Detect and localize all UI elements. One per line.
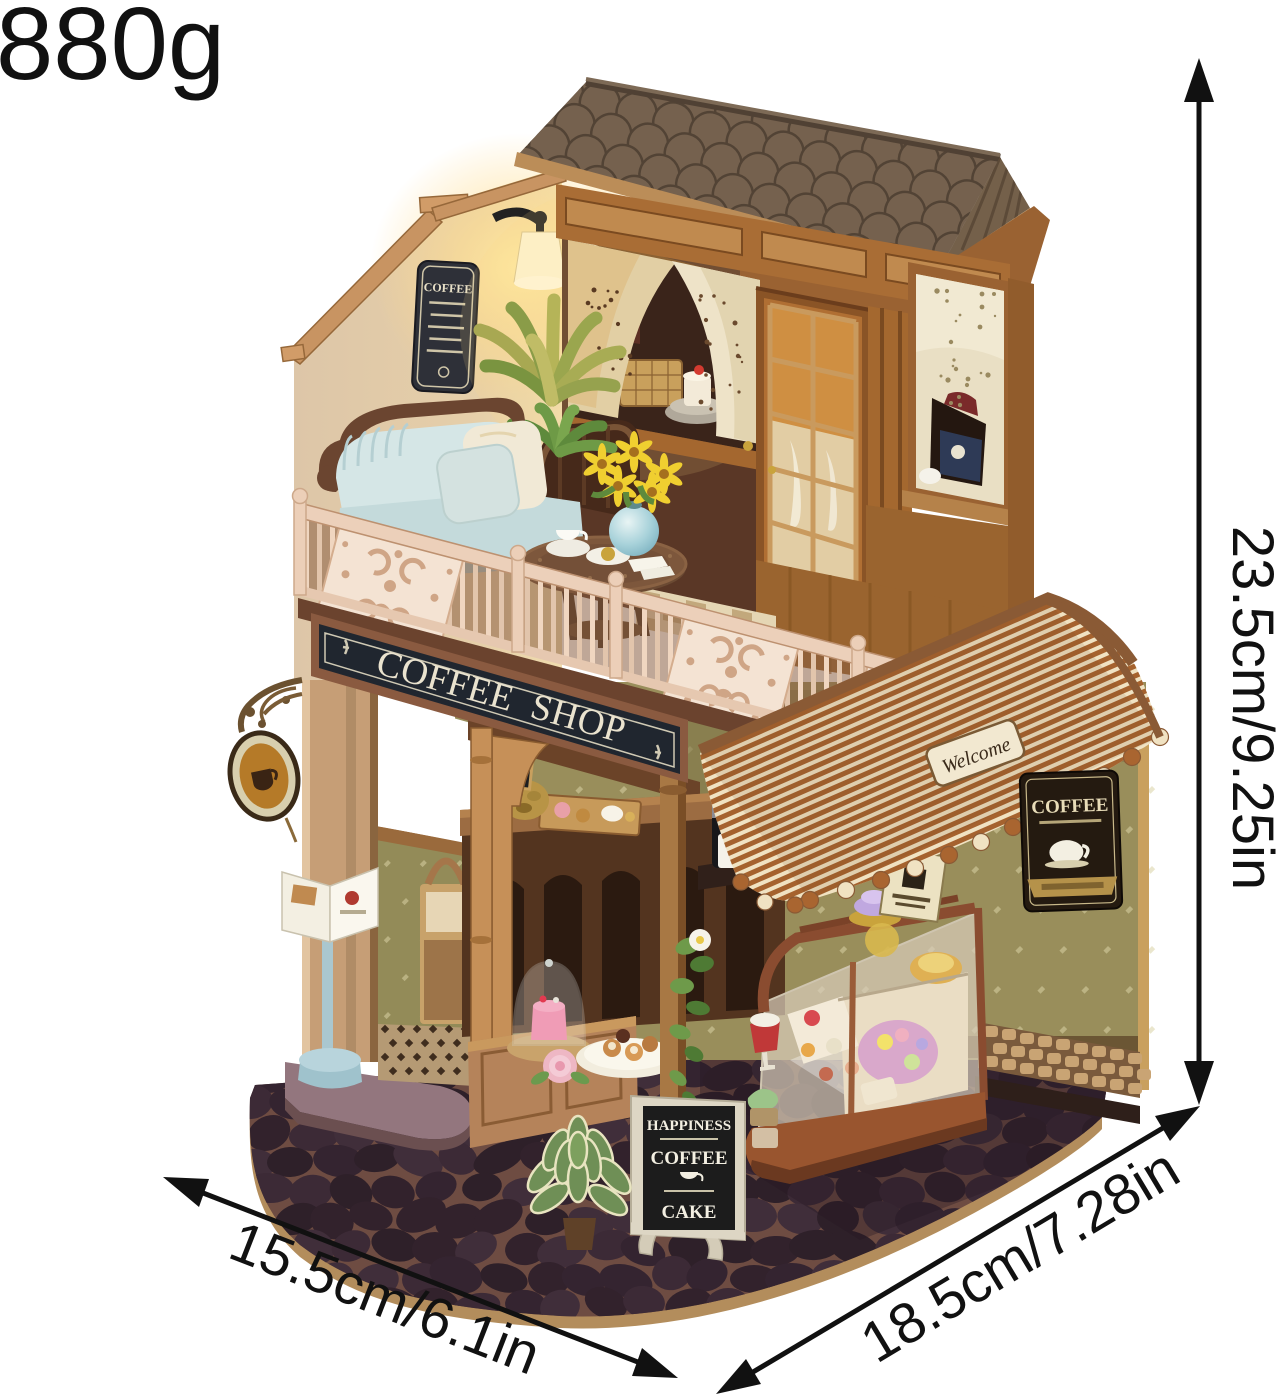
svg-text:880g: 880g [0,0,225,101]
svg-text:CAKE: CAKE [662,1202,717,1223]
svg-text:23.5cm/9.25in: 23.5cm/9.25in [1220,526,1282,890]
svg-text:COFFEE: COFFEE [650,1148,727,1169]
svg-text:HAPPINESS: HAPPINESS [647,1118,731,1134]
svg-text:COFFEE: COFFEE [1031,795,1109,819]
